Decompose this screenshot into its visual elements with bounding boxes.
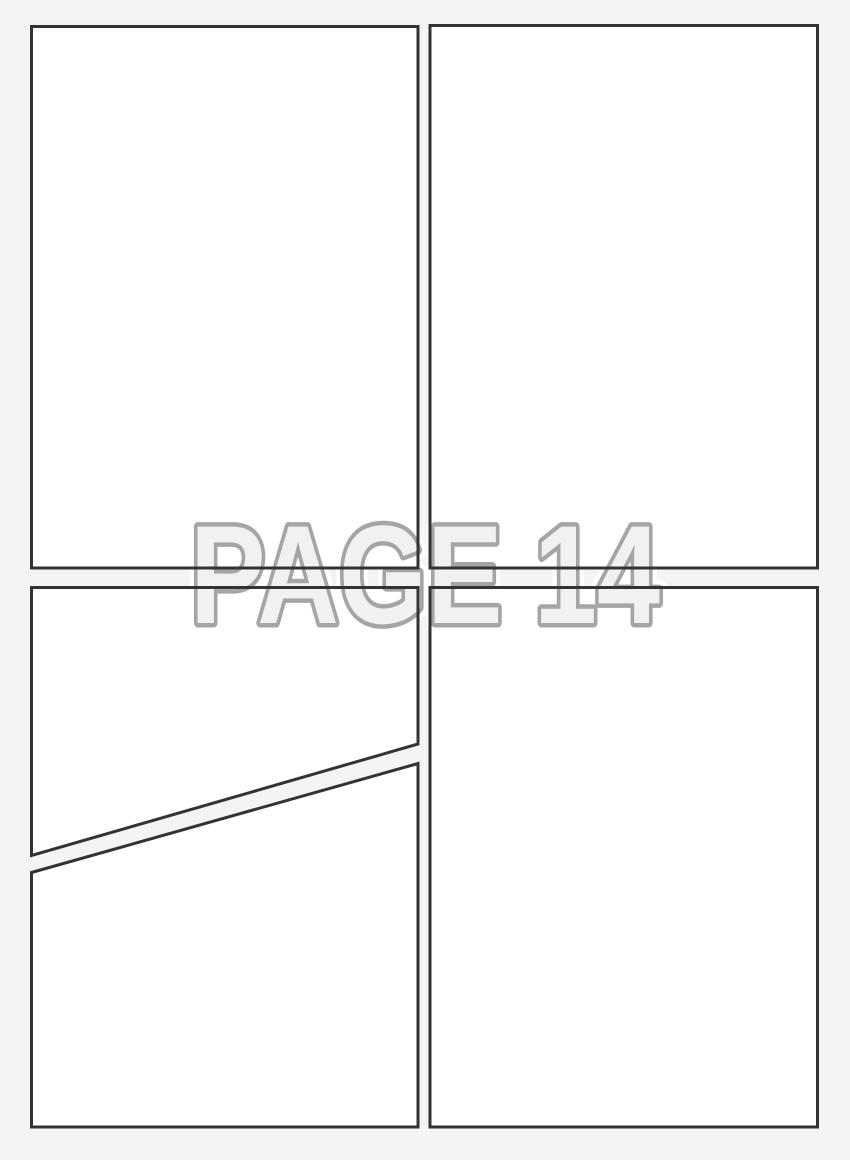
comic-page-template: PAGE 14 PAGE 14 <box>0 0 850 1160</box>
page-watermark: PAGE 14 PAGE 14 <box>190 496 660 653</box>
panel-top-right <box>430 26 818 569</box>
panel-bottom-right <box>430 588 818 1128</box>
watermark-label: PAGE 14 <box>190 496 660 653</box>
panel-top-left <box>32 27 419 569</box>
comic-page: PAGE 14 PAGE 14 <box>0 0 850 1160</box>
